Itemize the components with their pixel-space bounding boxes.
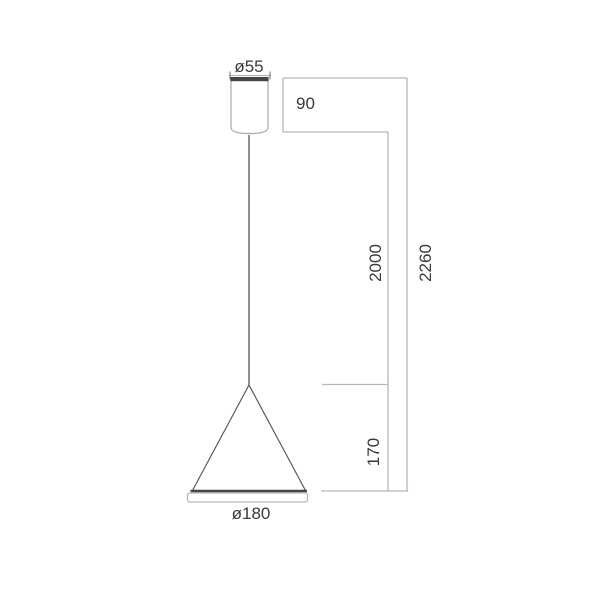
cone-right-edge (249, 385, 306, 491)
cone-left-edge (193, 385, 250, 491)
label-overall-height: 2260 (416, 244, 435, 282)
label-canopy-height: 90 (296, 94, 315, 113)
label-suspension-length: 2000 (366, 244, 385, 282)
cone-shade (193, 385, 306, 491)
pendant-lamp-technical-drawing: ø55 90 2000 2260 170 ø180 (0, 0, 600, 600)
canopy-top-cap (230, 77, 268, 81)
canopy-body (231, 79, 268, 134)
label-canopy-diameter: ø55 (234, 57, 263, 76)
label-shade-diameter: ø180 (232, 504, 271, 523)
label-shade-height: 170 (364, 438, 383, 466)
shade-rim-outline (188, 493, 308, 502)
drawing-canvas: ø55 90 2000 2260 170 ø180 (0, 0, 600, 600)
canopy (230, 77, 268, 134)
